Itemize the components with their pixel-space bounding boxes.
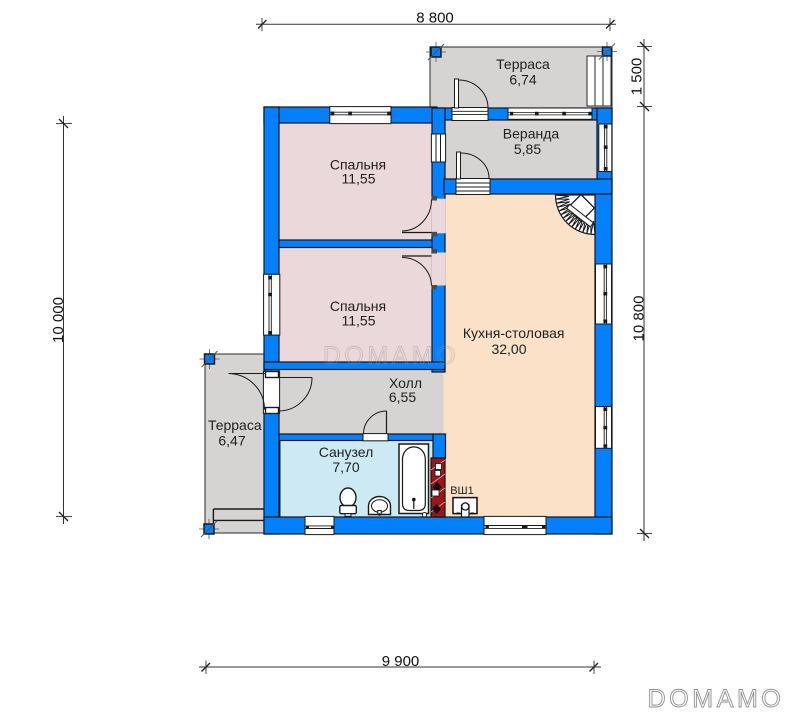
svg-text:10 000: 10 000: [50, 297, 67, 343]
svg-text:5,85: 5,85: [514, 141, 541, 157]
svg-text:ВШ1: ВШ1: [450, 485, 474, 497]
svg-text:DOMAMO: DOMAMO: [323, 342, 459, 370]
svg-text:Терраса: Терраса: [208, 417, 262, 433]
svg-text:11,55: 11,55: [342, 313, 376, 329]
svg-text:32,00: 32,00: [491, 341, 526, 357]
svg-text:7,70: 7,70: [332, 459, 359, 475]
svg-text:1 500: 1 500: [628, 58, 645, 96]
svg-text:11,55: 11,55: [342, 171, 376, 187]
svg-text:10 800: 10 800: [630, 296, 647, 342]
svg-text:Спальня: Спальня: [330, 298, 386, 314]
svg-text:DOMAMO: DOMAMO: [648, 685, 785, 713]
svg-text:9 900: 9 900: [382, 653, 420, 670]
svg-text:Кухня-столовая: Кухня-столовая: [463, 325, 565, 341]
svg-text:6,55: 6,55: [389, 389, 416, 405]
svg-text:Терраса: Терраса: [496, 56, 550, 72]
svg-text:6,47: 6,47: [218, 433, 245, 449]
svg-text:Санузел: Санузел: [319, 444, 374, 460]
svg-text:8 800: 8 800: [416, 10, 454, 27]
svg-text:Веранда: Веранда: [503, 125, 560, 141]
svg-text:6,74: 6,74: [509, 72, 536, 88]
